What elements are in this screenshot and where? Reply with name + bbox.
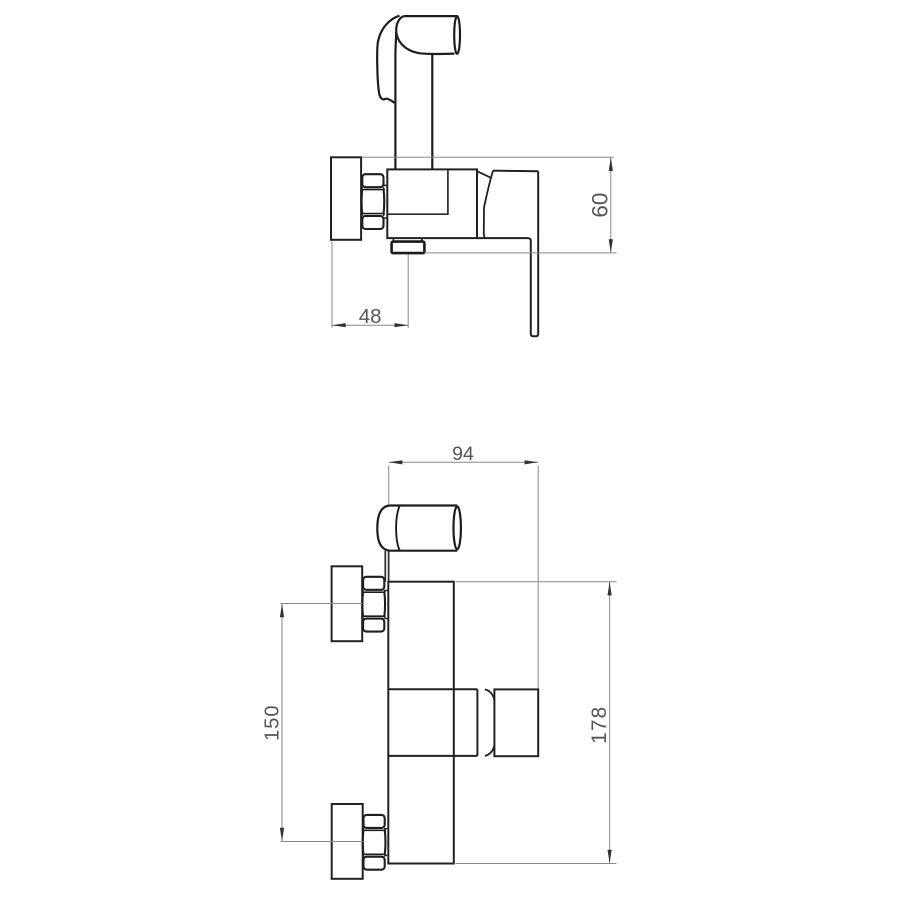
svg-text:178: 178 xyxy=(588,706,611,744)
svg-text:150: 150 xyxy=(262,705,284,741)
svg-text:60: 60 xyxy=(588,193,613,218)
svg-text:48: 48 xyxy=(359,305,382,328)
svg-text:94: 94 xyxy=(452,443,474,465)
